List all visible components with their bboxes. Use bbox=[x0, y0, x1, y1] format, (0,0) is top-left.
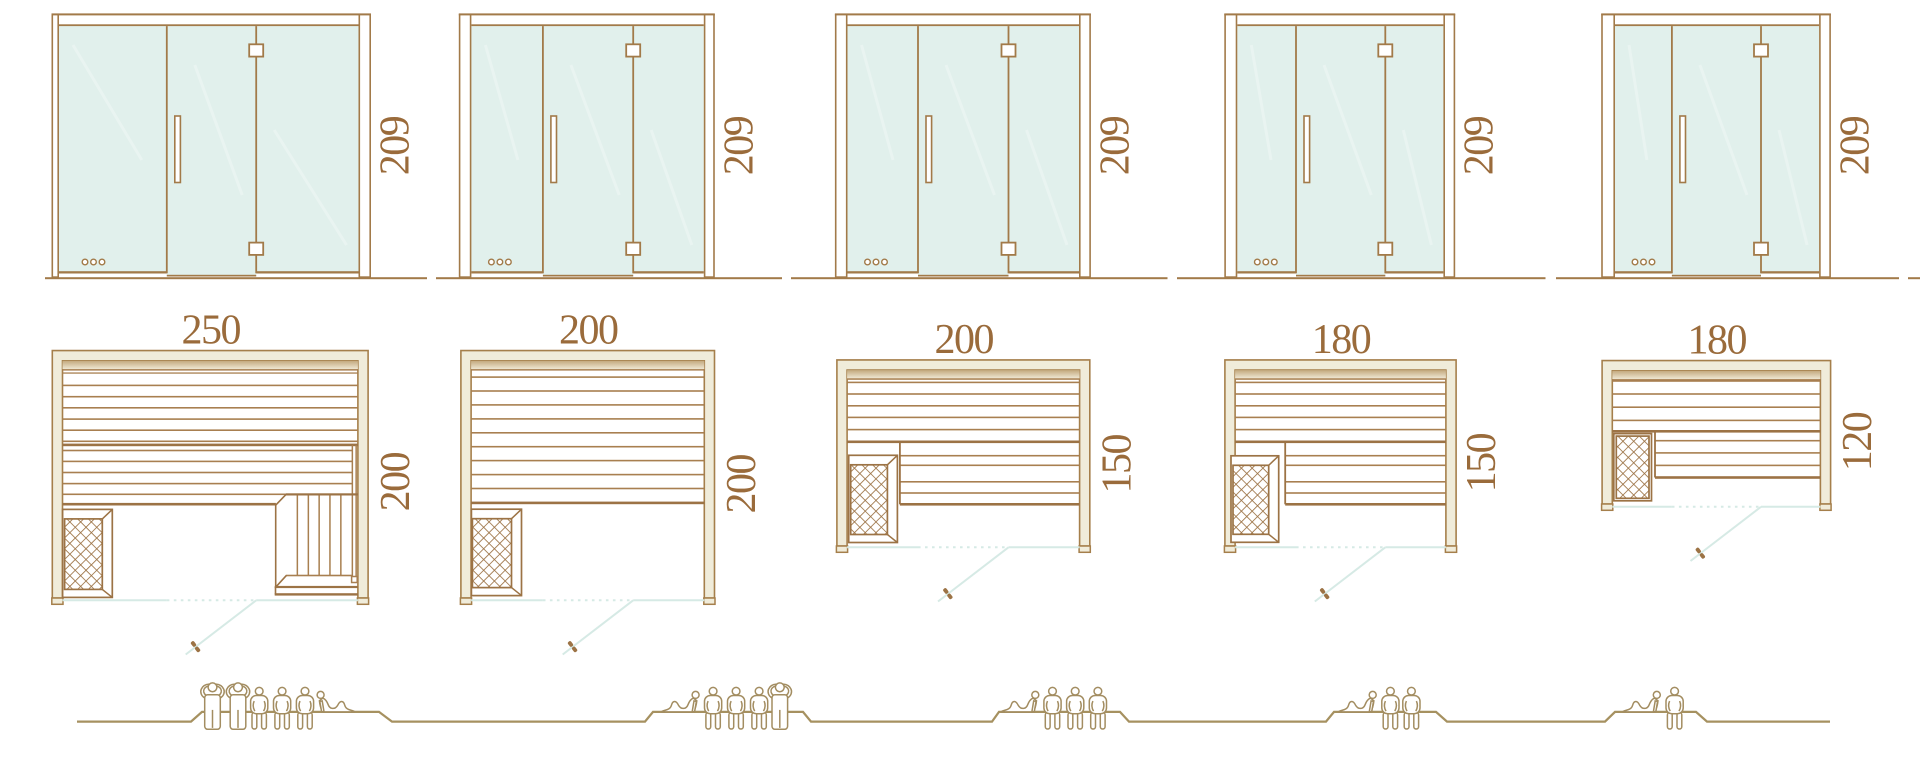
svg-text:150: 150 bbox=[1095, 435, 1141, 494]
svg-text:209: 209 bbox=[1832, 116, 1878, 175]
svg-text:180: 180 bbox=[1688, 318, 1747, 364]
svg-text:250: 250 bbox=[181, 308, 240, 354]
svg-text:200: 200 bbox=[559, 308, 618, 354]
svg-text:209: 209 bbox=[716, 116, 762, 175]
svg-text:209: 209 bbox=[373, 116, 419, 175]
svg-text:180: 180 bbox=[1312, 317, 1371, 363]
svg-text:200: 200 bbox=[935, 317, 994, 363]
svg-text:200: 200 bbox=[719, 454, 765, 513]
svg-text:150: 150 bbox=[1459, 433, 1505, 492]
svg-text:120: 120 bbox=[1835, 412, 1881, 471]
svg-text:209: 209 bbox=[1457, 116, 1503, 175]
svg-text:200: 200 bbox=[373, 452, 419, 511]
svg-text:209: 209 bbox=[1092, 116, 1138, 175]
